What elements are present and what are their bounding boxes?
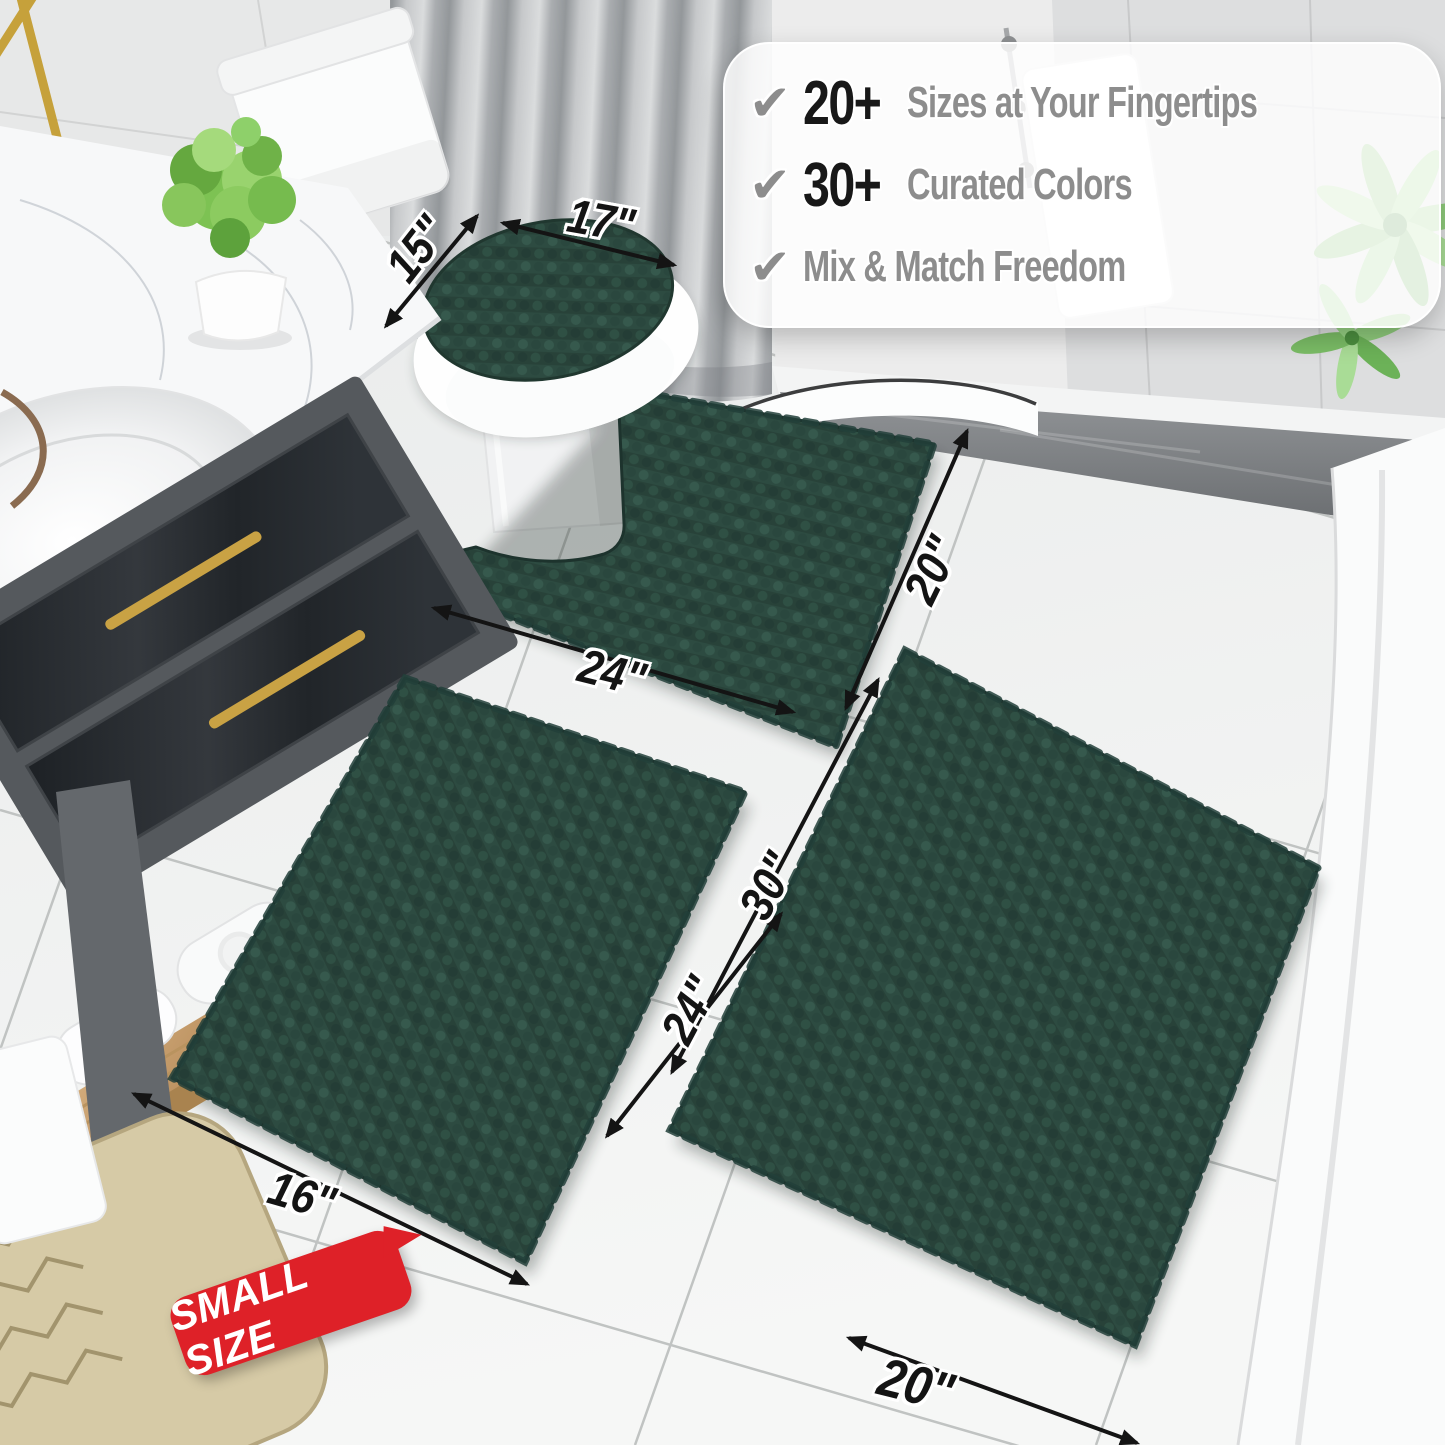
callout-count: 30+ (803, 150, 884, 221)
callout-row-mix-match: ✔ Mix & Match Freedom (725, 226, 1439, 308)
product-showcase-image: MISU (0, 0, 1445, 1445)
callout-count: 20+ (803, 68, 884, 139)
callout-label: Sizes at Your Fingertips (907, 78, 1257, 128)
callout-label: Curated Colors (907, 160, 1132, 210)
check-icon: ✔ (749, 242, 803, 292)
callout-row-colors: ✔ 30+ Curated Colors (725, 144, 1439, 226)
callout-row-sizes: ✔ 20+ Sizes at Your Fingertips (725, 62, 1439, 144)
feature-callout: ✔ 20+ Sizes at Your Fingertips ✔ 30+ Cur… (723, 42, 1441, 328)
badge-tail (383, 1226, 422, 1259)
callout-label: Mix & Match Freedom (803, 242, 1125, 292)
check-icon: ✔ (749, 78, 803, 128)
check-icon: ✔ (749, 160, 803, 210)
